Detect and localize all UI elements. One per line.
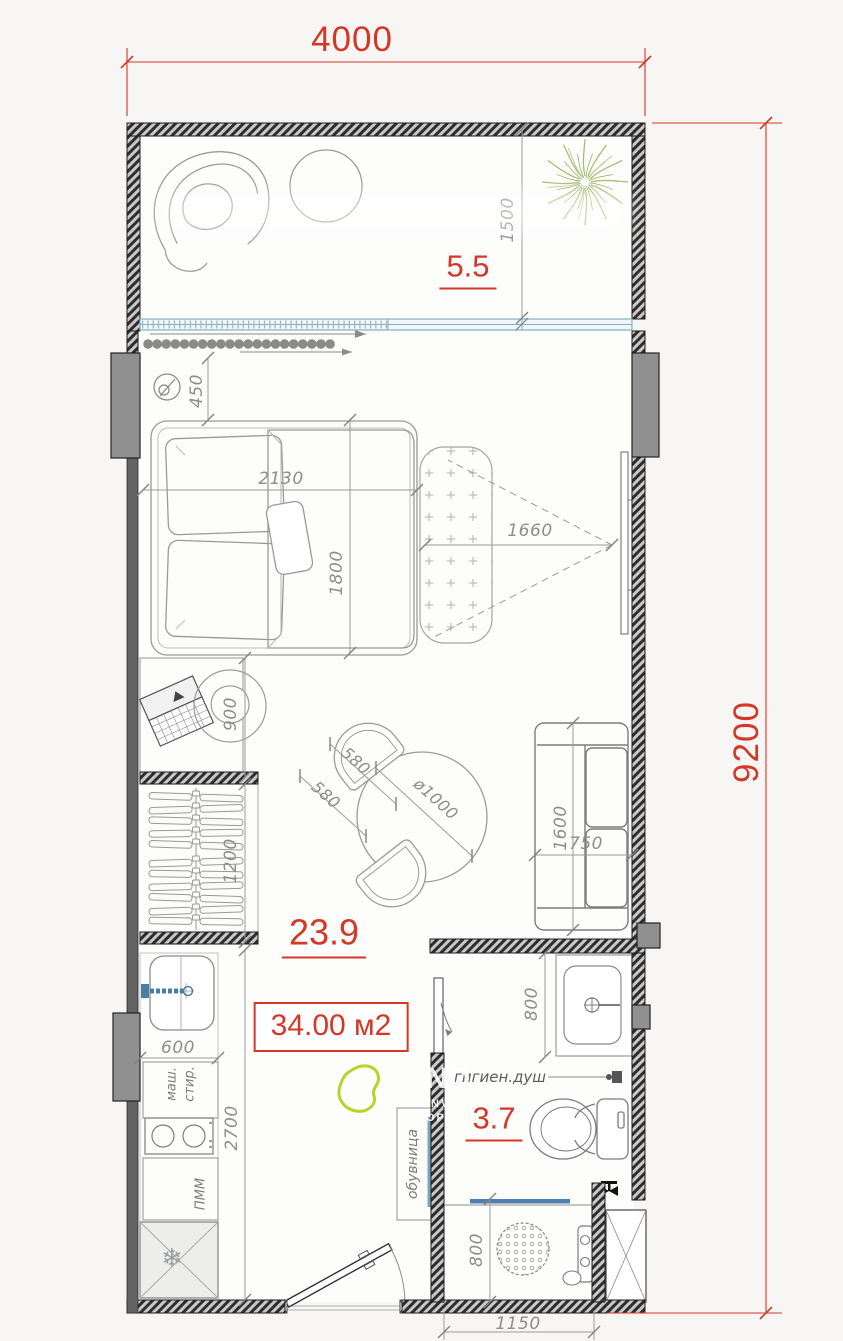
hygienic-shower-fixture <box>548 1071 622 1083</box>
dim-tv-distance: 1660 <box>507 521 552 541</box>
stove <box>145 1118 213 1154</box>
curtain <box>148 330 366 356</box>
watermark-line-2: INV <box>426 1098 471 1110</box>
dim-overall-width: 4000 <box>311 20 393 60</box>
bathroom-pocket-door <box>434 978 452 1054</box>
shoe-cabinet-label: обувница <box>405 1129 421 1199</box>
washing-machine-label-1: стир. <box>183 1066 198 1102</box>
entry-door <box>279 1240 408 1313</box>
dim-bed-width: 1800 <box>327 550 347 595</box>
washing-machine <box>143 1062 218 1118</box>
dim-desk-depth: 900 <box>221 697 241 731</box>
dim-bath-sink-width: 800 <box>522 987 542 1021</box>
washing-machine-label-2: маш. <box>165 1067 180 1101</box>
watermark: ND INV OP <box>426 1062 471 1124</box>
dim-shower-width: 800 <box>467 1233 487 1267</box>
fridge-snowflake-icon: ❄ <box>161 1244 183 1274</box>
sofa <box>535 723 628 930</box>
dim-wardrobe-width: 1200 <box>221 838 241 883</box>
wardrobe <box>149 776 258 940</box>
area-balcony: 5.5 <box>439 249 496 290</box>
marker-blob <box>339 1066 379 1111</box>
dim-kitchen-run: 2700 <box>222 1105 242 1150</box>
bed <box>151 421 417 655</box>
laptop <box>140 676 214 746</box>
bathroom-sink <box>556 955 632 1056</box>
dishwasher-label: ПММ <box>194 1178 209 1210</box>
floor-plan: 4000 9200 5.5 23.9 3.7 34.00 м2 1500 450… <box>0 0 843 1341</box>
area-bathroom: 3.7 <box>465 1101 522 1142</box>
dim-shower-outer: 1150 <box>495 1314 540 1334</box>
dim-overall-height: 9200 <box>727 701 767 783</box>
dining-chair-1 <box>321 710 407 793</box>
dim-kitchen-width: 600 <box>161 1038 195 1058</box>
wall-left-solid <box>127 455 138 1313</box>
area-total: 34.00 м2 <box>254 1002 409 1052</box>
area-room: 23.9 <box>282 912 366 959</box>
balcony-window <box>140 318 632 330</box>
outlet-symbol <box>154 374 180 400</box>
dim-bed-length: 2130 <box>258 469 303 489</box>
kitchen-sink <box>141 956 214 1030</box>
watermark-line-3: OP <box>426 1112 471 1124</box>
dim-sofa-length: 1600 <box>551 805 571 850</box>
toilet <box>530 1099 628 1159</box>
watermark-blur <box>158 192 628 232</box>
red-dimension-lines <box>121 48 782 1319</box>
dim-wall-to-bed: 450 <box>187 374 207 408</box>
ventilation-shaft <box>606 1210 646 1302</box>
dim-sofa-depth: 750 <box>569 834 603 854</box>
watermark-line-1: ND <box>426 1062 471 1096</box>
